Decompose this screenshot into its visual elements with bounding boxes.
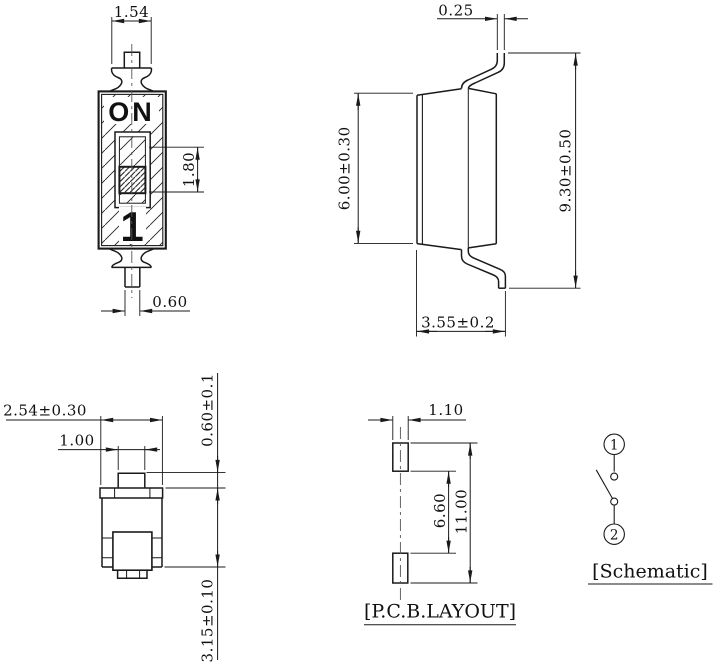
top-lead [462,53,505,89]
dim-body-height: 6.00±0.30 [336,93,414,243]
dim-text-9-30: 9.30±0.50 [557,129,575,213]
dim-text-1-10: 1.10 [428,401,463,419]
dim-body-depth: 3.55±0.2 [417,250,506,337]
bottom-terminal [125,267,140,287]
pcb-layout-view: 1.10 6.60 11.00 [P.C.B.LAYOUT] [364,401,516,625]
terminal-1-label: 1 [610,437,619,453]
schematic-label: [Schematic] [592,561,708,583]
side-view: 0.25 6.00±0.30 9.30±0.50 3.55±0.2 [336,2,581,337]
dim-text-6-60: 6.60 [431,493,449,528]
dim-text-1-80: 1.80 [180,152,198,187]
end-bottom-tab-inner [127,570,140,578]
end-flange-strip [100,488,163,498]
dim-actuator-width: 1.00 [58,432,160,471]
side-body-outline [417,88,496,249]
end-center-boss [113,532,152,570]
dim-text-3-15: 3.15±0.10 [199,579,217,663]
switch-lever [596,470,612,499]
dim-lead-thickness: 0.25 [437,2,528,51]
dim-actuator-height-and-thickness: 0.60±0.1 3.15±0.10 [147,373,226,662]
pcb-layout-label: [P.C.B.LAYOUT] [364,601,516,623]
contact-top [611,473,618,480]
end-flange-dividers [115,488,150,498]
dim-overall-height: 9.30±0.50 [508,53,581,288]
dim-text-11-00: 11.00 [452,489,470,534]
dim-text-6-00: 6.00±0.30 [336,126,354,210]
dim-text-2-54: 2.54±0.30 [3,402,87,420]
technical-drawing-canvas: ON 1 1.54 1.80 [0,0,727,664]
dim-pad-gap: 6.60 [411,471,457,553]
front-view: ON 1 1.54 1.80 [99,3,204,316]
dim-text-1-00: 1.00 [59,432,94,450]
dim-text-3-55: 3.55±0.2 [421,314,495,332]
end-actuator-tab [118,473,145,488]
gull-wing-lead [462,248,506,288]
dim-text-0-60-tol: 0.60±0.1 [199,373,217,447]
end-view: 2.54±0.30 1.00 0.60±0.1 3.15±0.10 [3,373,225,662]
contact-bottom [611,498,618,505]
dim-terminal-width: 0.60 [101,290,190,316]
slider-handle [119,167,145,193]
dim-text-1-54: 1.54 [114,3,149,21]
schematic-view: 1 2 [Schematic] [588,434,713,584]
dim-text-0-25: 0.25 [438,2,473,20]
terminal-2-label: 2 [610,527,619,543]
dim-pad-width: 1.10 [368,401,466,440]
dim-text-0-60: 0.60 [152,293,187,311]
end-bottom-tab [118,570,147,578]
